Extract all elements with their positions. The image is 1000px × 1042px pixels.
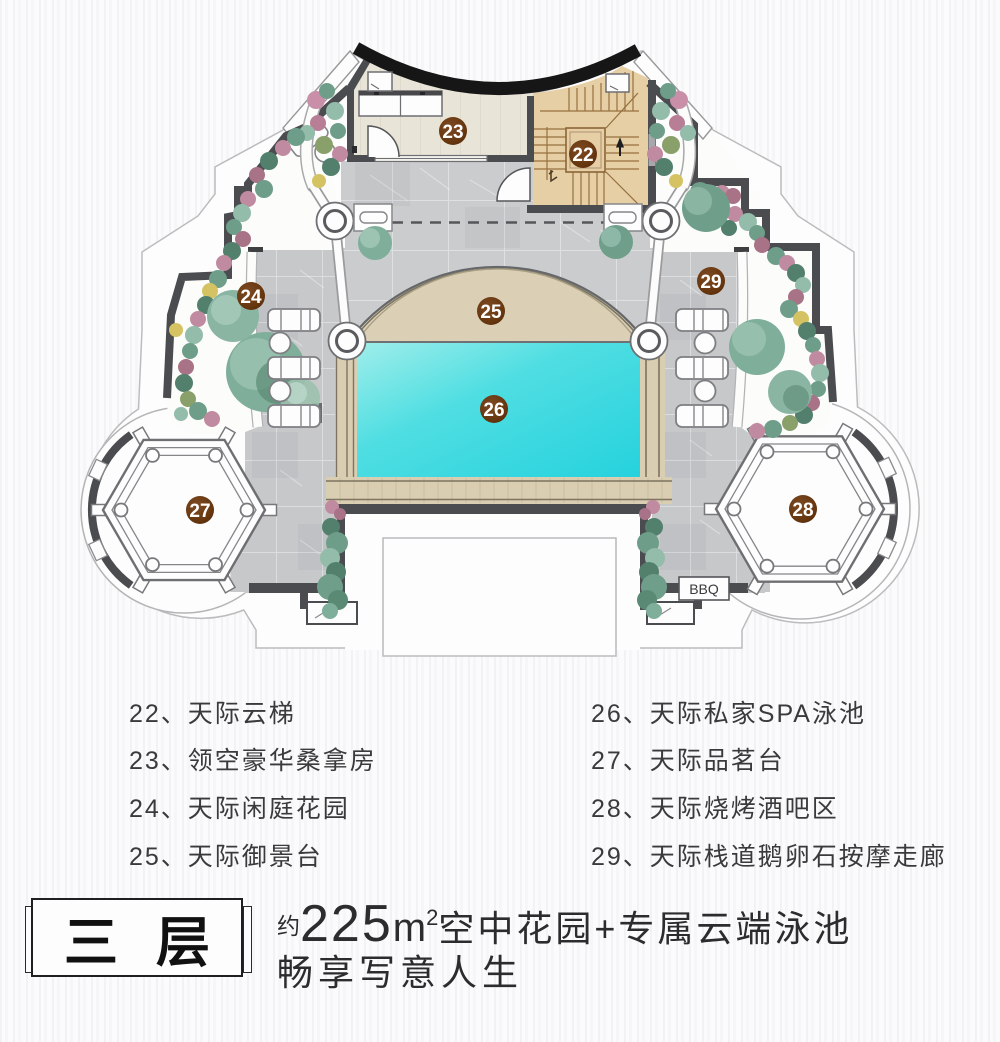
svg-text:26: 26 bbox=[483, 400, 504, 421]
svg-text:BBQ: BBQ bbox=[689, 581, 719, 597]
svg-text:29: 29 bbox=[700, 272, 721, 293]
svg-text:28: 28 bbox=[792, 500, 813, 521]
svg-text:24: 24 bbox=[240, 287, 262, 308]
svg-text:27: 27 bbox=[189, 501, 210, 522]
svg-text:22: 22 bbox=[572, 145, 593, 166]
svg-text:25: 25 bbox=[480, 302, 502, 323]
svg-text:23: 23 bbox=[442, 122, 463, 143]
